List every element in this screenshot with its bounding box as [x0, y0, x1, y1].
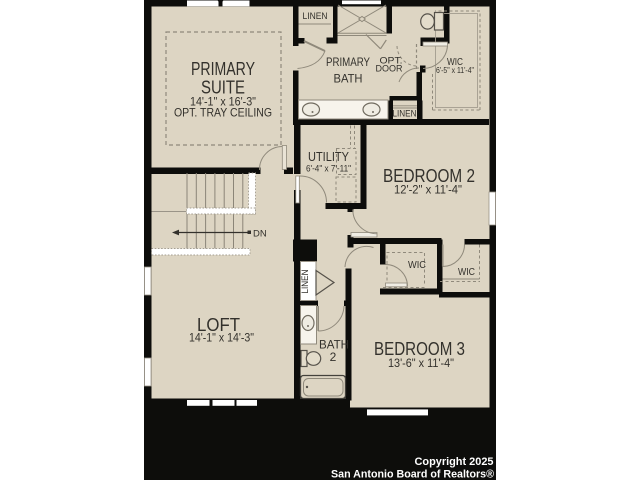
svg-text:13'-6" x 11'-4": 13'-6" x 11'-4" — [388, 356, 454, 370]
svg-text:14'-1" x 14'-3": 14'-1" x 14'-3" — [189, 331, 254, 345]
svg-text:BATH: BATH — [334, 71, 363, 85]
svg-text:DN: DN — [253, 229, 267, 240]
svg-text:Copyright 2025: Copyright 2025 — [415, 456, 494, 468]
svg-text:WIC: WIC — [458, 267, 475, 278]
svg-text:6'-5" x 11'-4": 6'-5" x 11'-4" — [436, 66, 474, 75]
svg-text:LINEN: LINEN — [300, 270, 310, 294]
svg-text:WIC: WIC — [408, 260, 426, 271]
svg-text:6'-4" x 7'-11": 6'-4" x 7'-11" — [306, 164, 351, 175]
svg-text:OPT. TRAY CEILING: OPT. TRAY CEILING — [174, 105, 272, 119]
svg-text:PRIMARY: PRIMARY — [326, 55, 370, 69]
svg-text:LINEN: LINEN — [393, 109, 417, 120]
svg-text:UTILITY: UTILITY — [308, 149, 349, 164]
svg-text:2: 2 — [330, 350, 337, 364]
svg-text:LINEN: LINEN — [303, 11, 328, 22]
svg-text:San Antonio Board of Realtors®: San Antonio Board of Realtors® — [331, 469, 494, 480]
svg-text:DOOR: DOOR — [376, 64, 403, 75]
svg-text:PRIMARY: PRIMARY — [191, 59, 255, 79]
svg-text:12'-2" x 11'-4": 12'-2" x 11'-4" — [394, 183, 462, 197]
